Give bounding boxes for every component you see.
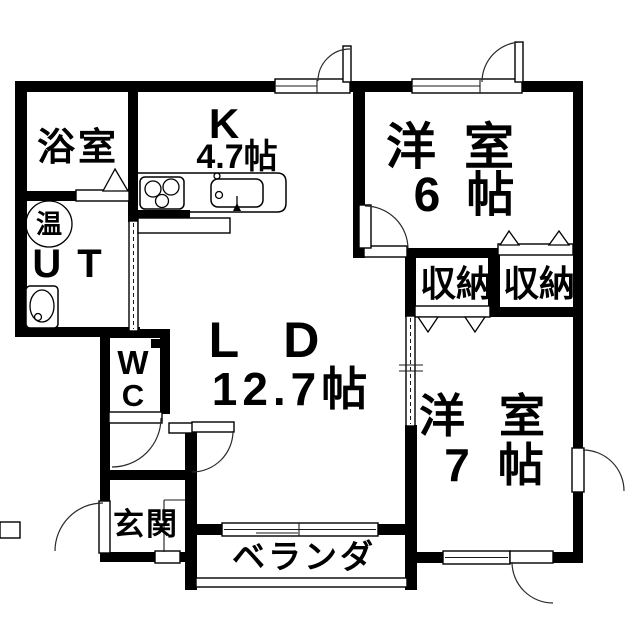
- toilet-mark: [151, 339, 160, 348]
- room7-south-door-leaf: [510, 551, 553, 563]
- wall-bath-south: [15, 191, 78, 201]
- wall-entrance-top: [102, 470, 193, 480]
- storage-left-door-band: [415, 306, 490, 317]
- room6-label: 洋室: [386, 119, 542, 175]
- room7-east-door-leaf: [572, 448, 584, 492]
- wall-storage2-bottom: [488, 307, 583, 317]
- room6-door-leaf: [359, 205, 371, 248]
- floorplan-page: 浴室 K 4.7帖 洋室 6帖 温 UT W C LD 12.7帖 収納 収納 …: [0, 0, 640, 640]
- wall-room7-west: [405, 425, 417, 590]
- storage-left-label: 収納: [420, 263, 492, 304]
- room7-size: 7帖: [444, 439, 572, 491]
- floorplan-svg: 浴室 K 4.7帖 洋室 6帖 温 UT W C LD 12.7帖 収納 収納 …: [0, 0, 640, 640]
- wall-wc-right: [160, 329, 170, 414]
- storage-right-label: 収納: [503, 263, 575, 304]
- veranda-rail: [196, 578, 407, 587]
- entrance-label: 玄関: [113, 507, 179, 542]
- veranda-label: ベランダ: [232, 538, 376, 575]
- entrance-step-band: [155, 551, 180, 563]
- living-dining-label: LD: [209, 312, 364, 368]
- wall-room7-south-left: [405, 552, 443, 563]
- wall-storage1-top: [405, 248, 500, 258]
- living-dining-size: 12.7帖: [212, 363, 373, 415]
- wall-left: [15, 81, 27, 337]
- wc-door-band: [109, 412, 162, 423]
- top-window1-leaf: [343, 46, 351, 82]
- wall-room7-south-right: [553, 552, 583, 563]
- kitchen-counter-return: [138, 218, 230, 233]
- top-window2-leaf: [515, 42, 523, 82]
- hall-door-leaf: [192, 422, 234, 432]
- room7-label: 洋室: [419, 390, 579, 442]
- kitchen-size: 4.7帖: [196, 138, 277, 176]
- entrance-door-leaf: [99, 501, 110, 553]
- entrance-porch-step: [0, 522, 20, 538]
- wc-label-line1: W: [117, 344, 149, 381]
- wall-veranda-west: [185, 428, 197, 590]
- room6-size: 6帖: [414, 169, 541, 222]
- hot-water-label: 温: [36, 209, 62, 239]
- bathroom-label: 浴室: [37, 126, 119, 169]
- hall-door-sill: [169, 423, 193, 433]
- utility-label: UT: [32, 242, 117, 286]
- wc-label-line2: C: [122, 378, 144, 413]
- wall-ld-south-right: [378, 524, 417, 535]
